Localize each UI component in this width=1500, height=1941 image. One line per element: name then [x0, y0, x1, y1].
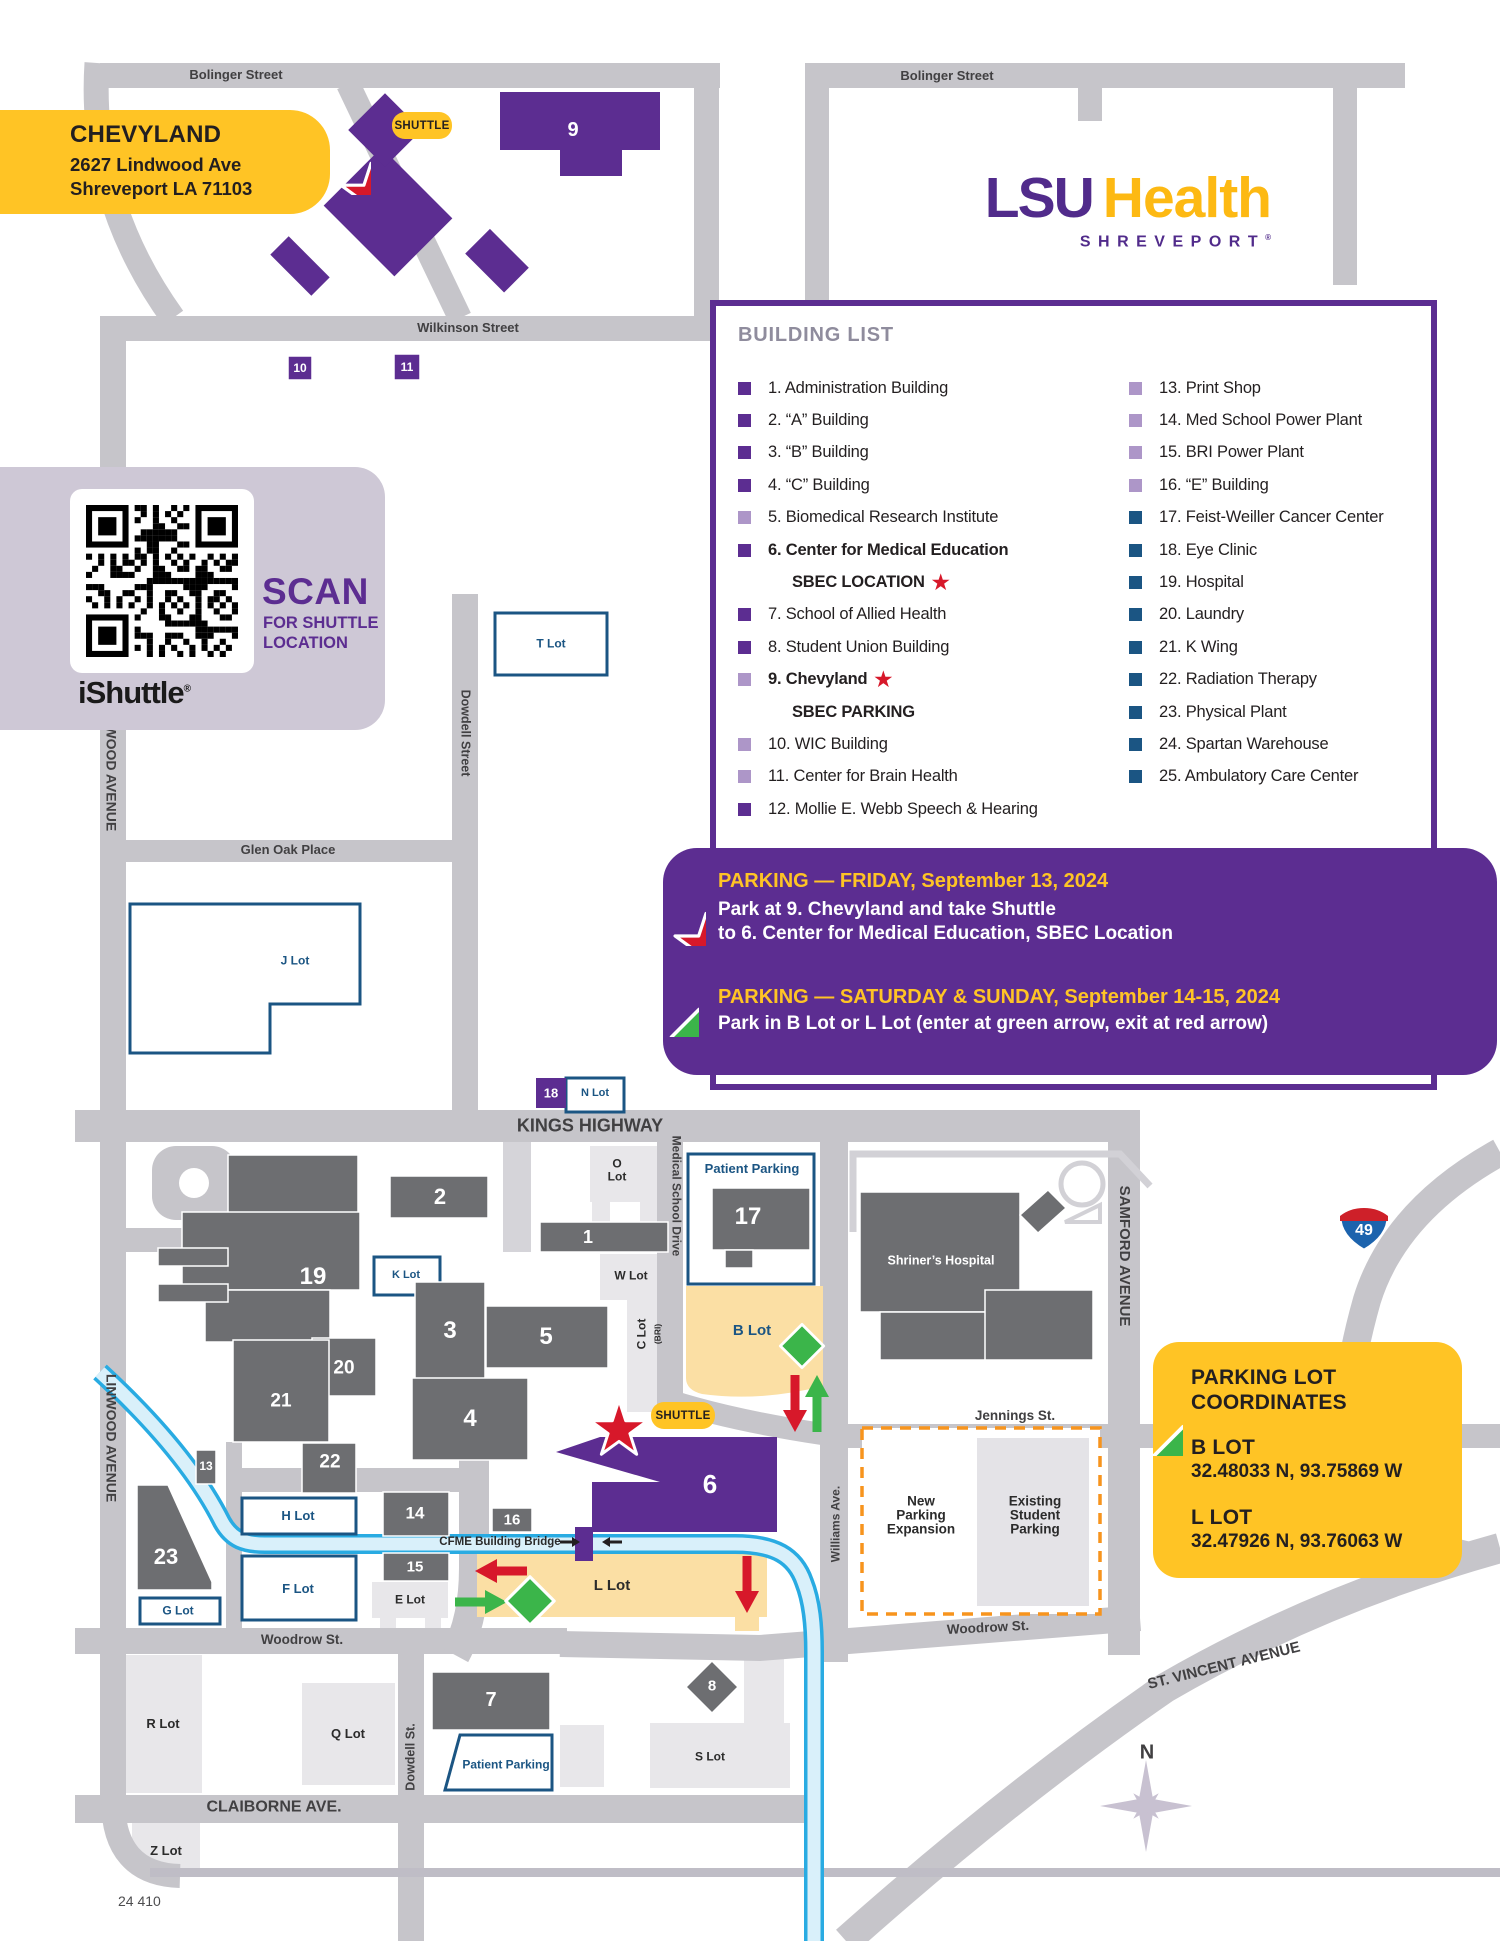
red-star-icon: ★ — [932, 573, 950, 593]
shuttle-qr-panel: SCAN FOR SHUTTLE LOCATION iShuttle® — [0, 467, 385, 730]
campus-map-page: Bolinger StreetBolinger StreetWilkinson … — [0, 0, 1500, 1941]
list-bullet-icon — [738, 544, 751, 557]
coords-title-line1: PARKING LOT — [1191, 1366, 1336, 1390]
list-bullet-icon — [738, 738, 751, 751]
building-list-label: 2. “A” Building — [768, 411, 869, 430]
logo-health-text: Health — [1103, 165, 1271, 231]
l-lot-heading: L LOT — [1191, 1506, 1252, 1530]
building-list-item: 1. Administration Building — [732, 372, 1122, 404]
ishuttle-brand: iShuttle® — [78, 675, 190, 711]
building-list-label: 21. K Wing — [1159, 638, 1238, 657]
parking-instructions-banner: PARKING — FRIDAY, September 13, 2024 Par… — [663, 848, 1497, 1075]
chevyland-star-marker — [295, 119, 371, 195]
list-bullet-icon — [1129, 608, 1142, 621]
logo-lsu-text: LSU — [985, 165, 1093, 231]
chevyland-address-callout: CHEVYLAND 2627 Lindwood Ave Shreveport L… — [0, 110, 330, 214]
building-list-label: 3. “B” Building — [768, 443, 869, 462]
lsu-health-shreveport-logo: LSU Health SHREVEPORT® — [903, 165, 1271, 251]
list-bullet-icon — [1129, 673, 1142, 686]
compass-icon — [1100, 1760, 1192, 1852]
building-list-item: 5. Biomedical Research Institute — [732, 502, 1122, 534]
building-list-label: 8. Student Union Building — [768, 638, 949, 657]
logo-shreveport-text: SHREVEPORT® — [903, 233, 1271, 251]
building-list-label: 5. Biomedical Research Institute — [768, 508, 998, 527]
list-bullet-icon — [738, 641, 751, 654]
building-list-item: 3. “B” Building — [732, 437, 1122, 469]
building-list-label: 13. Print Shop — [1159, 379, 1261, 398]
parking-lot-coordinates-box: PARKING LOT COORDINATES B LOT 32.48033 N… — [1153, 1342, 1462, 1578]
building-list-label: 16. “E” Building — [1159, 476, 1269, 495]
building-list-label: 18. Eye Clinic — [1159, 541, 1257, 560]
banner-weekend-diamond-icon — [633, 971, 699, 1037]
building-list-label: SBEC LOCATION — [792, 573, 925, 592]
building-list-title: BUILDING LIST — [738, 324, 894, 347]
building-list-label: SBEC PARKING — [792, 703, 915, 722]
list-bullet-icon — [1129, 479, 1142, 492]
building-list-item: 13. Print Shop — [1123, 372, 1433, 404]
building-list-item: 19. Hospital — [1123, 566, 1433, 598]
building-list-item: 7. School of Allied Health — [732, 599, 1122, 631]
building-list-label: 10. WIC Building — [768, 735, 888, 754]
building-list-subline: SBEC LOCATION★ — [732, 566, 1122, 598]
parking-expansion-layer — [862, 1428, 1100, 1614]
list-bullet-icon — [738, 446, 751, 459]
coords-title-line2: COORDINATES — [1191, 1391, 1347, 1415]
building-list-label: 14. Med School Power Plant — [1159, 411, 1362, 430]
scan-title: SCAN — [262, 571, 369, 613]
building-list-item: 22. Radiation Therapy — [1123, 664, 1433, 696]
list-bullet-icon — [738, 511, 751, 524]
building-list-item: 11. Center for Brain Health — [732, 761, 1122, 793]
building-list-item: 2. “A” Building — [732, 404, 1122, 436]
chevyland-title: CHEVYLAND — [70, 121, 221, 149]
building-list-item: 24. Spartan Warehouse — [1123, 728, 1433, 760]
building-list-label: 24. Spartan Warehouse — [1159, 735, 1328, 754]
building-list-item: 25. Ambulatory Care Center — [1123, 761, 1433, 793]
building-list-item: 6. Center for Medical Education — [732, 534, 1122, 566]
list-bullet-icon — [1129, 576, 1142, 589]
building-list-label: 20. Laundry — [1159, 605, 1244, 624]
list-bullet-icon — [738, 382, 751, 395]
list-bullet-icon — [738, 673, 751, 686]
building-list-label: 1. Administration Building — [768, 379, 948, 398]
list-bullet-icon — [1129, 706, 1142, 719]
scan-subtitle-2: LOCATION — [263, 634, 348, 653]
list-bullet-icon — [738, 608, 751, 621]
building-list-label: 12. Mollie E. Webb Speech & Hearing — [768, 800, 1038, 819]
building-list-item: 9. Chevyland★ — [732, 664, 1122, 696]
building-list-label: 9. Chevyland — [768, 670, 867, 689]
building-list-label: 4. “C” Building — [768, 476, 870, 495]
b-lot-coordinates: 32.48033 N, 93.75869 W — [1191, 1461, 1402, 1483]
road-loop-island — [179, 1168, 209, 1198]
building-list-item: 8. Student Union Building — [732, 631, 1122, 663]
building-list-column-left: 1. Administration Building2. “A” Buildin… — [732, 372, 1122, 825]
list-bullet-icon — [738, 770, 751, 783]
building-list-item: 10. WIC Building — [732, 728, 1122, 760]
list-bullet-icon — [738, 414, 751, 427]
list-bullet-icon — [738, 479, 751, 492]
list-bullet-icon — [1129, 641, 1142, 654]
building-list-label: 23. Physical Plant — [1159, 703, 1287, 722]
weekend-parking-title: PARKING — SATURDAY & SUNDAY, September 1… — [718, 986, 1280, 1009]
building-list-label: 25. Ambulatory Care Center — [1159, 767, 1358, 786]
friday-parking-line1: Park at 9. Chevyland and take Shuttle — [718, 899, 1056, 921]
friday-parking-line2: to 6. Center for Medical Education, SBEC… — [718, 923, 1173, 945]
building-list-label: 11. Center for Brain Health — [768, 767, 958, 786]
list-bullet-icon — [1129, 446, 1142, 459]
scan-subtitle-1: FOR SHUTTLE — [263, 614, 379, 633]
red-star-icon: ★ — [874, 670, 892, 690]
qr-code — [70, 489, 254, 673]
list-bullet-icon — [738, 803, 751, 816]
building-list-item: 12. Mollie E. Webb Speech & Hearing — [732, 793, 1122, 825]
building-list-label: 15. BRI Power Plant — [1159, 443, 1304, 462]
shuttle-stop-badge-chevyland: SHUTTLE — [392, 112, 452, 139]
building-list-item: 4. “C” Building — [732, 469, 1122, 501]
building-list-item: 17. Feist-Weiller Cancer Center — [1123, 502, 1433, 534]
list-bullet-icon — [1129, 738, 1142, 751]
building-list-item: 23. Physical Plant — [1123, 696, 1433, 728]
shuttle-stop-badge-cme: SHUTTLE — [651, 1402, 715, 1429]
banner-friday-star-icon — [628, 868, 706, 946]
building-list-label: 22. Radiation Therapy — [1159, 670, 1317, 689]
building-list-label: 6. Center for Medical Education — [768, 541, 1008, 560]
coords-box-diamond-icon — [1113, 1386, 1183, 1456]
building-list-label: 7. School of Allied Health — [768, 605, 946, 624]
list-bullet-icon — [1129, 511, 1142, 524]
weekend-parking-line1: Park in B Lot or L Lot (enter at green a… — [718, 1013, 1268, 1035]
building-list-item: 14. Med School Power Plant — [1123, 404, 1433, 436]
building-list-item: 15. BRI Power Plant — [1123, 437, 1433, 469]
chevyland-address-line1: 2627 Lindwood Ave — [70, 154, 241, 176]
building-list-label: 19. Hospital — [1159, 573, 1244, 592]
friday-parking-title: PARKING — FRIDAY, September 13, 2024 — [718, 870, 1108, 893]
document-code: 24 410 — [118, 1893, 161, 1909]
building-list-subline: SBEC PARKING — [732, 696, 1122, 728]
building-list-item: 20. Laundry — [1123, 599, 1433, 631]
list-bullet-icon — [1129, 544, 1142, 557]
l-lot-coordinates: 32.47926 N, 93.76063 W — [1191, 1531, 1402, 1553]
list-bullet-icon — [1129, 382, 1142, 395]
b-lot-heading: B LOT — [1191, 1436, 1255, 1460]
list-bullet-icon — [1129, 770, 1142, 783]
building-list-item: 16. “E” Building — [1123, 469, 1433, 501]
chevyland-address-line2: Shreveport LA 71103 — [70, 178, 252, 200]
building-list-item: 18. Eye Clinic — [1123, 534, 1433, 566]
building-list-label: 17. Feist-Weiller Cancer Center — [1159, 508, 1384, 527]
list-bullet-icon — [1129, 414, 1142, 427]
building-list-item: 21. K Wing — [1123, 631, 1433, 663]
building-list-column-right: 13. Print Shop14. Med School Power Plant… — [1123, 372, 1433, 793]
